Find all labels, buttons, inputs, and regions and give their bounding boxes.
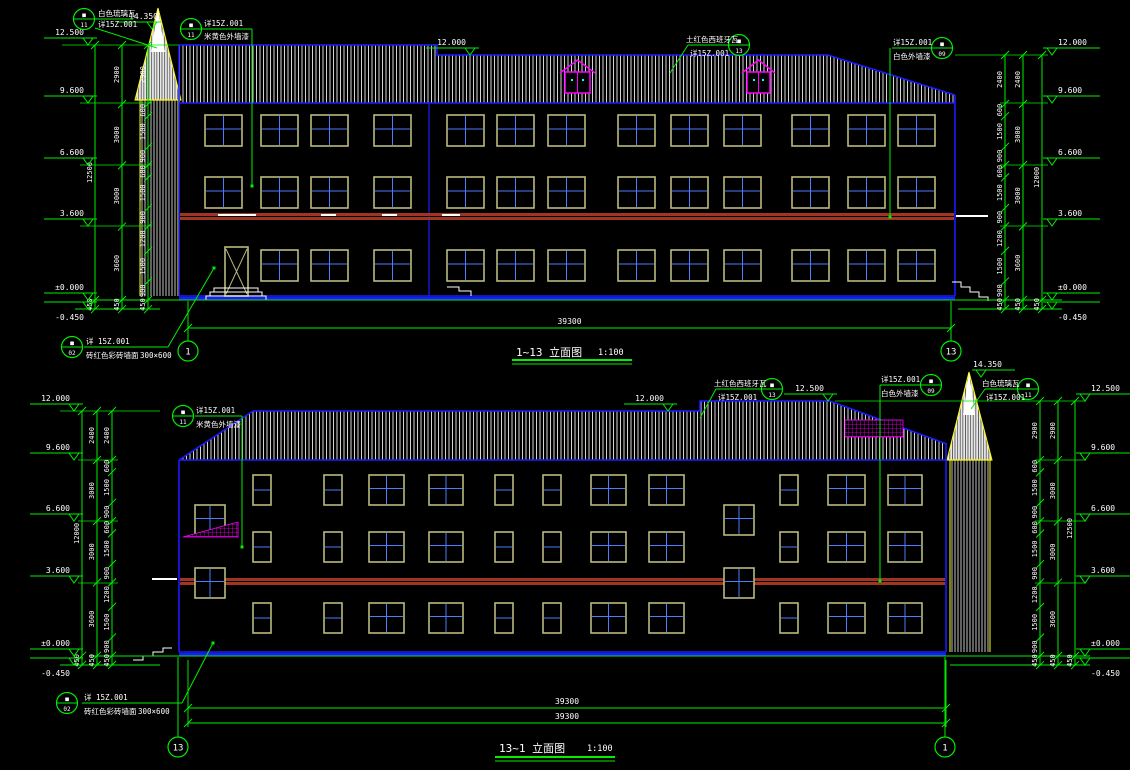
dim-label: 450 [1033,298,1041,311]
elevation-label: 6.600 [1058,148,1082,157]
elevation-label: 9.600 [46,443,70,452]
callout-text: 300×600 [140,351,172,360]
dim-label: 450 [139,298,147,311]
callout-text: 白色琉璃瓦 [98,8,136,18]
dim-label: 900 [139,150,147,163]
red-band [180,582,945,585]
callout-text: 土红色西班牙瓦 [714,378,767,388]
dim-label: 450 [1049,654,1057,667]
elevation-label: 9.600 [1091,443,1115,452]
dim-label: 450 [86,298,94,311]
leader-dot [889,216,892,219]
elevation-label: 12.500 [1091,384,1120,393]
elevation-label: 6.600 [1091,504,1115,513]
dim-label: 450 [88,654,96,667]
dim-label: 1500 [1031,540,1039,557]
elevation-label: 12.000 [437,38,466,47]
elevation-label: -0.450 [1091,669,1120,678]
dormer-mark [582,79,584,81]
dim-label: 3000 [113,188,121,205]
elevation-label: 12.000 [635,394,664,403]
callout-bubble-bottom: 02 [68,350,76,357]
dim-label: 600 [996,165,1004,178]
dim-label: 12000 [1033,167,1041,188]
elevation-label: 12.500 [55,28,84,37]
elevation-label: 14.350 [973,360,1002,369]
dim-label: 600 [139,104,147,117]
callout-bubble-bottom: 11 [80,22,88,29]
callout-text: 详15Z.001 [986,392,1025,402]
dim-label: 600 [103,521,111,534]
callout-text: 详15Z.001 [718,392,757,402]
dim-label: 3000 [113,126,121,143]
roof-hatch [179,45,437,103]
dim-label: 1500 [139,184,147,201]
elevation-label: 6.600 [60,148,84,157]
dim-label: 450 [1066,654,1074,667]
dim-label: 39300 [557,317,581,326]
dim-label: 900 [139,211,147,224]
callout-text: 米黄色外墙漆 [196,419,241,429]
dim-label: 2400 [996,71,1004,88]
dim-label: 3000 [88,543,96,560]
dim-label: 2900 [1031,422,1039,439]
callout-bubble-top: ■ [940,41,944,48]
dim-label: 39300 [555,712,579,721]
drawing-scale: 1:100 [587,744,613,754]
elevation-label: 9.600 [1058,86,1082,95]
callout-text: 详15Z.001 [98,19,137,29]
dim-label: 900 [996,211,1004,224]
elevation-drawing-canvas: 1250045029003000300036004502900600150090… [0,0,1130,770]
axis-label: 13 [946,348,957,358]
dim-label: 3600 [88,611,96,628]
dim-label: 900 [103,640,111,653]
callout-text: 米黄色外墙漆 [204,31,249,41]
elevation-label: -0.450 [41,669,70,678]
dim-label: 2900 [1049,422,1057,439]
red-band [180,217,954,220]
dim-label: 450 [113,298,121,311]
callout-bubble-top: ■ [65,696,69,703]
dim-label: 900 [1031,506,1039,519]
callout-bubble-top: ■ [189,22,193,29]
dim-label: 450 [1031,654,1039,667]
dim-label: 600 [1031,521,1039,534]
callout-text: 土红色西班牙瓦 [686,34,739,44]
red-band [180,578,945,581]
dim-label: 1500 [139,258,147,275]
dim-label: 3000 [1014,126,1022,143]
dim-label: 12500 [86,162,94,183]
elevation-label: ±0.000 [1091,639,1120,648]
cad-sheet: 1250045029003000300036004502900600150090… [0,0,1130,770]
dim-label: 2400 [103,427,111,444]
dim-label: 1500 [103,479,111,496]
callout-bubble-bottom: 02 [63,706,71,713]
dim-label: 3600 [1049,611,1057,628]
callout-text: 300×600 [138,707,170,716]
callout-bubble-bottom: 11 [1024,392,1032,399]
leader-dot [251,185,254,188]
dim-label: 3600 [113,255,121,272]
dim-label: 3000 [1014,187,1022,204]
dim-label: 2400 [88,427,96,444]
roof-grille [845,420,903,437]
dim-label: 1500 [996,258,1004,275]
dim-label: 1200 [139,230,147,247]
dim-label: 600 [103,460,111,473]
callout-bubble-top: ■ [929,378,933,385]
dim-label: 1500 [103,614,111,631]
axis-label: 13 [173,744,184,754]
dim-label: 2400 [1014,71,1022,88]
callout-text: 详15Z.001 [204,18,243,28]
dim-label: 900 [996,150,1004,163]
leader-dot [212,642,215,645]
callout-bubble-bottom: 11 [179,419,187,426]
callout-bubble-bottom: 09 [938,51,946,58]
elevation-label: 9.600 [60,86,84,95]
dim-label: 1200 [103,586,111,603]
dim-label: 1500 [139,123,147,140]
dim-label: 900 [1031,640,1039,653]
callout-text: 白色琉璃瓦 [982,378,1020,388]
elevation-label: -0.450 [55,313,84,322]
dim-label: 900 [139,284,147,297]
drawing-title: 1~13 立面图 [516,345,582,359]
elevation-label: 12.000 [41,394,70,403]
dim-label: 600 [139,165,147,178]
elevation-label: ±0.000 [41,639,70,648]
dim-label: 1500 [996,123,1004,140]
dim-label: 900 [1031,567,1039,580]
dim-label: 3000 [1049,544,1057,561]
dim-label: 600 [996,104,1004,117]
dim-label: 3000 [1049,482,1057,499]
dim-label: 450 [1014,298,1022,311]
elevation-label: 3.600 [46,566,70,575]
elevation-label: 6.600 [46,504,70,513]
callout-bubble-bottom: 13 [768,392,776,399]
callout-text: 详15Z.001 [893,37,932,47]
callout-text: 详 15Z.001 [84,692,128,702]
tower-body [950,460,990,652]
callout-text: 详15Z.001 [881,374,920,384]
axis-label: 1 [185,348,190,358]
red-band [180,213,954,216]
elevation-label: ±0.000 [55,283,84,292]
elevation-label: -0.450 [1058,313,1087,322]
elevation-label: 3.600 [60,209,84,218]
elevation-label: ±0.000 [1058,283,1087,292]
dim-label: 1500 [1031,614,1039,631]
dim-label: 2900 [139,66,147,83]
leader-dot [241,546,244,549]
callout-bubble-bottom: 13 [735,48,743,55]
dim-label: 450 [103,654,111,667]
dim-label: 1200 [1031,586,1039,603]
callout-bubble-top: ■ [181,409,185,416]
dim-label: 3600 [1014,255,1022,272]
callout-text: 砖红色彩砖墙面 [84,706,137,716]
dim-label: 600 [1031,460,1039,473]
dormer-mark [762,79,764,81]
elevation-label: 12.500 [795,384,824,393]
dim-label: 900 [103,506,111,519]
callout-bubble-top: ■ [1026,382,1030,389]
dim-label: 450 [996,298,1004,311]
dim-label: 1200 [996,230,1004,247]
drawing-title: 13~1 立面图 [499,741,565,755]
dim-label: 12000 [73,523,81,544]
dim-label: 3000 [88,482,96,499]
elevation-label: 3.600 [1091,566,1115,575]
callout-bubble-top: ■ [70,340,74,347]
drawing-scale: 1:100 [598,348,624,358]
callout-text: 砖红色彩砖墙面 [86,350,139,360]
callout-text: 详15Z.001 [690,48,729,58]
dim-label: 900 [996,284,1004,297]
dim-label: 1500 [996,184,1004,201]
dim-label: 900 [103,567,111,580]
callout-text: 详15Z.001 [196,405,235,415]
callout-bubble-top: ■ [770,382,774,389]
leader-dot [213,267,216,270]
dormer-mark [571,79,573,81]
callout-text: 详 15Z.001 [86,336,130,346]
callout-text: 白色外墙漆 [881,388,919,398]
dim-label: 12500 [1066,518,1074,539]
dim-label: 1500 [1031,479,1039,496]
callout-bubble-top: ■ [82,12,86,19]
callout-text: 白色外墙漆 [893,51,931,61]
elevation-label: 12.000 [1058,38,1087,47]
dim-label: 39300 [555,697,579,706]
callout-bubble-bottom: 09 [927,388,935,395]
leader-dot [879,580,882,583]
dormer-mark [753,79,755,81]
callout-bubble-bottom: 11 [187,32,195,39]
dim-label: 2900 [113,66,121,83]
dim-label: 1500 [103,540,111,557]
elevation-label: 3.600 [1058,209,1082,218]
axis-label: 1 [942,744,947,754]
